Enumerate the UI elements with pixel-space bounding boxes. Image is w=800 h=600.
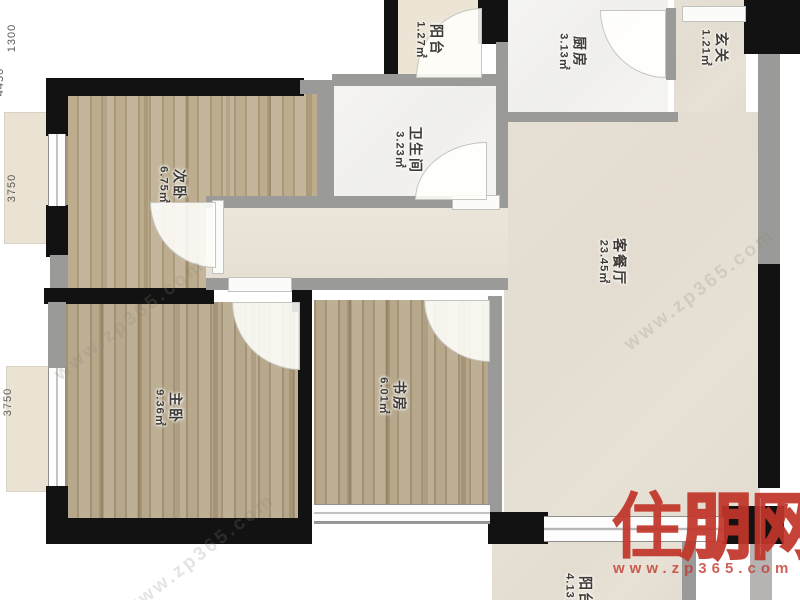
room-name: 书房 [390, 377, 408, 414]
wall-kitchen-bottom [506, 112, 678, 122]
wall-left-top-corner [46, 78, 68, 136]
watermark-char: 住 [611, 492, 681, 564]
room-area: 4.13㎡ [562, 573, 576, 600]
wall-master-bottom [46, 518, 312, 544]
watermark-logo: 住 朋 网 [611, 492, 800, 564]
room-label-bathroom: 卫生间 3.23㎡ [392, 126, 423, 174]
dimension-label: 3750 [6, 174, 18, 202]
watermark-char: 朋 [681, 492, 751, 564]
room-name: 玄关 [712, 29, 730, 66]
room-area: 23.45㎡ [596, 238, 610, 286]
wall-balcony-top-left [384, 0, 398, 84]
room-area: 6.01㎡ [376, 377, 390, 414]
room-area: 1.27㎡ [413, 21, 427, 58]
room-area: 6.75㎡ [156, 166, 170, 203]
window-study-bottom [314, 504, 490, 522]
room-label-bedroom-second: 次卧 6.75㎡ [156, 166, 187, 203]
watermark-url: www.zp365.com [613, 560, 793, 577]
master-door-opening [228, 277, 292, 292]
room-name: 阳台 [427, 21, 445, 58]
room-floor-living-corridor [206, 204, 508, 280]
wall-top-right-corner [744, 0, 800, 54]
window-foyer-top [682, 6, 746, 22]
wall-balcony-kitchen [478, 0, 508, 44]
room-area: 1.21㎡ [698, 29, 712, 66]
room-area: 3.23㎡ [392, 126, 406, 174]
wall-kitchen-foyer [666, 8, 676, 80]
room-label-kitchen: 厨房 3.13㎡ [556, 33, 587, 70]
wall-bathroom-left [318, 84, 334, 208]
dimension-label: 1300 [6, 24, 18, 52]
room-name: 客餐厅 [610, 238, 628, 286]
room-label-study: 书房 6.01㎡ [376, 377, 407, 414]
wall-bedroom2-top [46, 78, 304, 96]
floor-plan: 次卧 6.75㎡ 卫生间 3.23㎡ 阳台 1.27㎡ 厨房 3.13㎡ 玄关 … [0, 0, 800, 600]
wall-right-lower [758, 262, 780, 488]
room-label-living-dining: 客餐厅 23.45㎡ [596, 238, 627, 286]
wall-balcony-bottom-left [488, 512, 548, 544]
room-name: 主卧 [166, 389, 184, 426]
room-name: 阳台 [576, 573, 594, 600]
room-label-balcony-bottom: 阳台 4.13㎡ [562, 573, 593, 600]
wall-bathroom-right [496, 42, 508, 208]
window-bedroom2-bay [48, 134, 66, 206]
room-name: 厨房 [570, 33, 588, 70]
room-floor-living-main [504, 112, 760, 522]
room-name: 卫生间 [406, 126, 424, 174]
room-label-bedroom-master: 主卧 9.36㎡ [152, 389, 183, 426]
room-area: 9.36㎡ [152, 389, 166, 426]
wall-study-right [488, 296, 502, 512]
wall-left-mid [46, 205, 68, 257]
watermark-char: 网 [751, 492, 800, 564]
wall-corridor-master-left [44, 288, 214, 304]
wall-corridor-top [206, 196, 334, 208]
room-area: 3.13㎡ [556, 33, 570, 70]
room-label-foyer: 玄关 1.21㎡ [698, 29, 729, 66]
room-name: 次卧 [170, 166, 188, 203]
wall-master-study-divider [298, 296, 312, 528]
room-label-balcony-top: 阳台 1.27㎡ [413, 21, 444, 58]
dimension-label: 4450 [0, 68, 6, 96]
dimension-label: 3750 [2, 388, 14, 416]
